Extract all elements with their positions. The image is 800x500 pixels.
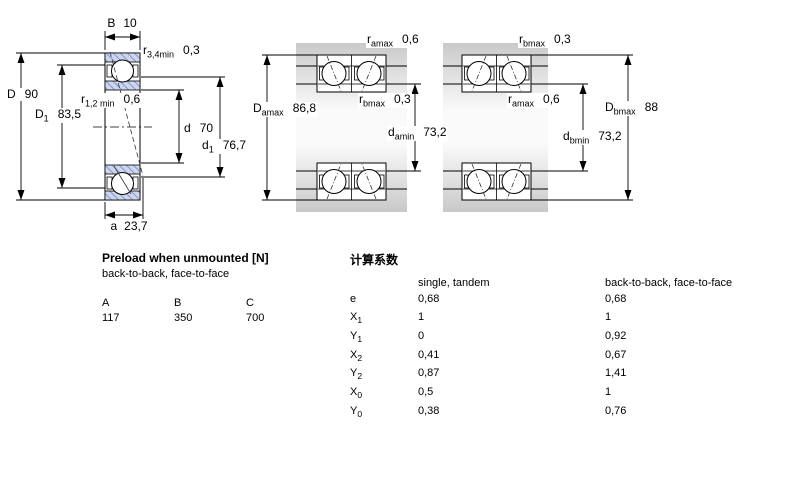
bearing-datasheet-page: B10 r3,4min0,3 D90 D183,5 r1,2 min0,6 d7…: [0, 0, 800, 500]
right-mounted-pair: [443, 43, 633, 212]
table-row: Y00,380,76: [350, 404, 732, 423]
factors-col2-header: back-to-back, face-to-face: [605, 276, 732, 292]
table-row: Y20,871,41: [350, 366, 732, 385]
dim-label-damin: damin73,2: [387, 126, 448, 141]
preload-header-row: ABC: [102, 297, 318, 309]
dim-label-d1: d176,7: [201, 139, 247, 154]
preload-val-b: 350: [174, 312, 246, 324]
left-bearing-cross-section: [93, 52, 152, 200]
preload-val-c: 700: [246, 312, 318, 324]
preload-values-row: 117350700: [102, 312, 318, 324]
table-row: X20,410,67: [350, 348, 732, 367]
preload-title: Preload when unmounted [N]: [102, 251, 318, 265]
dim-label-ramax-right: ramax0,6: [507, 93, 561, 108]
table-row: X00,51: [350, 385, 732, 404]
preload-col-b: B: [174, 297, 246, 309]
preload-col-a: A: [102, 297, 174, 309]
dim-label-Dbmax: Dbmax88: [604, 101, 659, 116]
dim-label-d: d70: [183, 122, 214, 135]
preload-subtitle: back-to-back, face-to-face: [102, 268, 318, 280]
factors-col1-header: single, tandem: [418, 276, 605, 292]
dim-label-r12min: r1,2 min0,6: [80, 93, 141, 108]
preload-col-c: C: [246, 297, 318, 309]
preload-table: Preload when unmounted [N] back-to-back,…: [102, 251, 318, 324]
dim-label-B: B10: [98, 17, 146, 30]
factors-title: 计算系数: [350, 251, 732, 268]
dim-label-a: a23,7: [102, 220, 156, 233]
dim-label-rbmax-middle: rbmax0,3: [358, 93, 412, 108]
dim-label-D: D90: [6, 88, 39, 101]
dim-label-dbmin: dbmin73,2: [562, 130, 623, 145]
table-row: Y100,92: [350, 329, 732, 348]
dim-label-D1: D183,5: [34, 108, 82, 123]
dim-label-ramax-middle: ramax0,6: [366, 33, 420, 48]
dim-label-Damax: Damax86,8: [252, 102, 317, 117]
dim-label-rbmax-right: rbmax0,3: [518, 33, 572, 48]
table-row: X111: [350, 310, 732, 329]
table-row: e0,680,68: [350, 292, 732, 311]
dim-label-r34min: r3,4min0,3: [142, 44, 201, 59]
calculation-factors-table: 计算系数 single, tandem back-to-back, face-t…: [350, 251, 732, 422]
preload-val-a: 117: [102, 312, 174, 324]
factors-header-row: single, tandem back-to-back, face-to-fac…: [350, 276, 732, 292]
